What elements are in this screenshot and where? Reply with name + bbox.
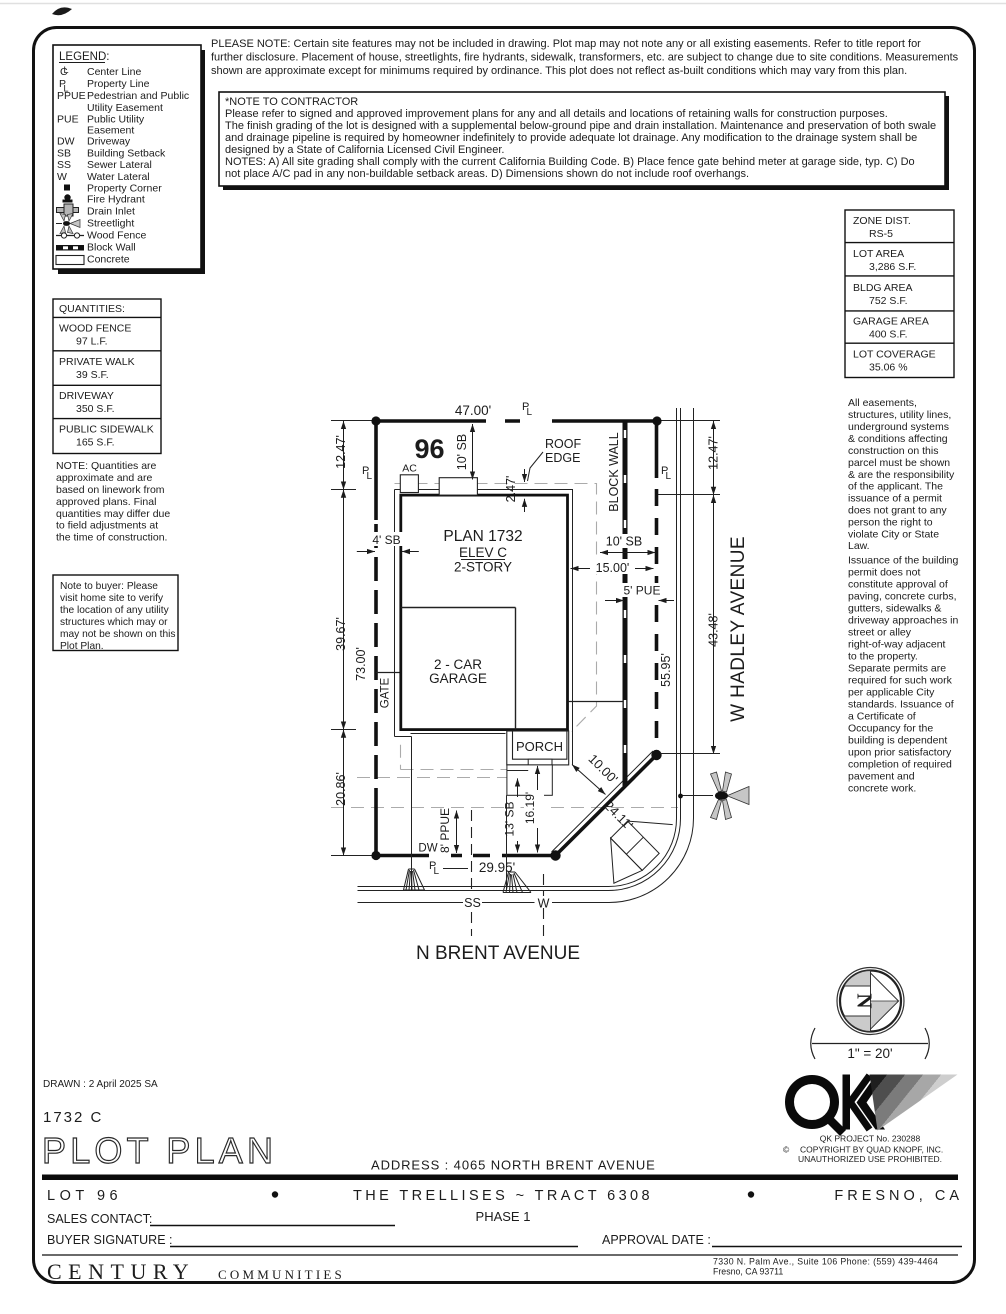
svg-text:structures which may or: structures which may or bbox=[60, 617, 168, 628]
svg-text:structures, utility lines,: structures, utility lines, bbox=[848, 409, 951, 421]
svg-text:29.95': 29.95' bbox=[479, 860, 515, 875]
svg-text:L: L bbox=[666, 471, 672, 482]
svg-text:quantities may differ due: quantities may differ due bbox=[56, 508, 170, 520]
svg-text:& conditions affecting: & conditions affecting bbox=[848, 433, 948, 445]
svg-text:350 S.F.: 350 S.F. bbox=[76, 403, 115, 415]
svg-text:of the applicant. The: of the applicant. The bbox=[848, 481, 943, 493]
svg-text:165 S.F.: 165 S.F. bbox=[76, 437, 115, 449]
svg-text:10' SB: 10' SB bbox=[606, 535, 642, 549]
svg-text:Utility Easement: Utility Easement bbox=[87, 102, 163, 114]
svg-text:LEGEND:: LEGEND: bbox=[59, 51, 110, 63]
svg-text:1" = 20': 1" = 20' bbox=[847, 1046, 892, 1061]
svg-text:3,286 S.F.: 3,286 S.F. bbox=[869, 261, 916, 273]
svg-text:and drainage pipeline is requi: and drainage pipeline is required by hom… bbox=[225, 132, 917, 144]
svg-text:designed by a State of Califor: designed by a State of California Licens… bbox=[225, 144, 504, 156]
svg-text:PUE: PUE bbox=[57, 114, 79, 126]
svg-text:Block Wall: Block Wall bbox=[87, 242, 136, 254]
svg-text:Pedestrian and Public: Pedestrian and Public bbox=[87, 90, 189, 102]
svg-text:approximate and are: approximate and are bbox=[56, 472, 152, 484]
svg-text:pavement and: pavement and bbox=[848, 771, 915, 783]
svg-text:47.00': 47.00' bbox=[455, 403, 491, 418]
svg-text:Sewer Lateral: Sewer Lateral bbox=[87, 159, 152, 171]
svg-text:UNAUTHORIZED USE PROHIBITED.: UNAUTHORIZED USE PROHIBITED. bbox=[798, 1154, 942, 1164]
svg-text:violate City or State: violate City or State bbox=[848, 529, 939, 541]
svg-text:DW: DW bbox=[57, 136, 75, 148]
svg-text:LOT 96: LOT 96 bbox=[47, 1188, 122, 1204]
svg-text:driveway approaches in: driveway approaches in bbox=[848, 615, 958, 627]
svg-text:upon prior satisfactory: upon prior satisfactory bbox=[848, 747, 952, 759]
svg-text:©: © bbox=[783, 1145, 790, 1155]
svg-text:10' SB: 10' SB bbox=[455, 434, 469, 470]
svg-text:Streetlight: Streetlight bbox=[87, 218, 134, 230]
svg-text:39.67': 39.67' bbox=[334, 617, 348, 651]
svg-text:2 - CAR: 2 - CAR bbox=[434, 657, 482, 672]
svg-text:may not be shown on this: may not be shown on this bbox=[60, 629, 176, 640]
svg-text:N BRENT AVENUE: N BRENT AVENUE bbox=[416, 943, 580, 964]
svg-text:QUANTITIES:: QUANTITIES: bbox=[59, 303, 125, 315]
svg-text:ROOF: ROOF bbox=[545, 437, 581, 451]
svg-text:paving, concrete curbs,: paving, concrete curbs, bbox=[848, 591, 957, 603]
svg-text:L: L bbox=[434, 866, 440, 877]
svg-text:N: N bbox=[853, 993, 877, 1008]
svg-text:PLEASE NOTE: Certain site fea: PLEASE NOTE: Certain site features may n… bbox=[211, 38, 921, 50]
svg-text:The finish grading of the lot: The finish grading of the lot is designe… bbox=[225, 120, 936, 132]
svg-text:12.47': 12.47' bbox=[707, 436, 721, 470]
svg-text:Fire Hydrant: Fire Hydrant bbox=[87, 194, 145, 206]
svg-text:COPYRIGHT BY QUAD KNOPF, INC.: COPYRIGHT BY QUAD KNOPF, INC. bbox=[800, 1145, 943, 1155]
svg-text:55.95': 55.95' bbox=[659, 653, 673, 687]
svg-text:35.06 %: 35.06 % bbox=[869, 362, 908, 374]
svg-text:to the property.: to the property. bbox=[848, 651, 918, 663]
svg-text:BLOCK WALL: BLOCK WALL bbox=[607, 432, 621, 511]
svg-text:APPROVAL DATE :: APPROVAL DATE : bbox=[602, 1233, 711, 1247]
svg-text:Building Setback: Building Setback bbox=[87, 148, 166, 160]
svg-text:gutters, sidewalks &: gutters, sidewalks & bbox=[848, 603, 941, 615]
svg-text:Concrete: Concrete bbox=[87, 254, 130, 266]
svg-text:AC: AC bbox=[402, 463, 417, 475]
svg-text:96: 96 bbox=[414, 434, 444, 464]
svg-text:EDGE: EDGE bbox=[545, 451, 580, 465]
svg-text:400 S.F.: 400 S.F. bbox=[869, 329, 908, 341]
svg-text:Center Line: Center Line bbox=[87, 66, 141, 78]
svg-text:GARAGE AREA: GARAGE AREA bbox=[853, 316, 929, 328]
svg-text:standards. Issuance of: standards. Issuance of bbox=[848, 699, 954, 711]
svg-text:8' PPUE: 8' PPUE bbox=[438, 808, 452, 853]
svg-text:building is dependent: building is dependent bbox=[848, 735, 947, 747]
svg-text:5' PUE: 5' PUE bbox=[624, 584, 661, 598]
svg-text:CENTURY: CENTURY bbox=[47, 1259, 195, 1284]
svg-text:DW: DW bbox=[418, 843, 437, 855]
svg-text:GARAGE: GARAGE bbox=[429, 671, 487, 686]
svg-text:7330 N. Palm Ave., Suite 106: 7330 N. Palm Ave., Suite 106 Phone: (559… bbox=[713, 1257, 938, 1267]
svg-text:*NOTE TO CONTRACTOR: *NOTE TO CONTRACTOR bbox=[225, 96, 358, 108]
svg-text:1732 C: 1732 C bbox=[43, 1109, 103, 1126]
svg-text:Fresno, CA 93711: Fresno, CA 93711 bbox=[713, 1267, 783, 1277]
svg-text:RS-5: RS-5 bbox=[869, 228, 893, 240]
svg-text:Property Line: Property Line bbox=[87, 78, 150, 90]
svg-text:per applicable City: per applicable City bbox=[848, 687, 935, 699]
svg-text:24.11': 24.11' bbox=[601, 798, 636, 833]
svg-text:ADDRESS : 4065 NORTH BRENT A: ADDRESS : 4065 NORTH BRENT AVENUE bbox=[371, 1158, 656, 1173]
svg-text:43.48': 43.48' bbox=[707, 613, 721, 647]
svg-text:12.47': 12.47' bbox=[334, 435, 348, 469]
svg-text:further disclosure. Placement: further disclosure. Placement of house, … bbox=[211, 52, 959, 64]
svg-text:DRIVEWAY: DRIVEWAY bbox=[59, 390, 114, 402]
svg-text:SALES CONTACT:: SALES CONTACT: bbox=[47, 1212, 152, 1226]
svg-text:Occupancy for the: Occupancy for the bbox=[848, 723, 933, 735]
svg-text:NOTES: A) All site grading sh: NOTES: A) All site grading shall comply … bbox=[225, 156, 915, 168]
svg-text:Wood Fence: Wood Fence bbox=[87, 230, 146, 242]
svg-text:to field adjustments at: to field adjustments at bbox=[56, 520, 158, 532]
svg-text:All easements,: All easements, bbox=[848, 397, 917, 409]
svg-text:W HADLEY AVENUE: W HADLEY AVENUE bbox=[728, 536, 749, 722]
svg-text:not place A/C pad in any non-b: not place A/C pad in any non-buildable s… bbox=[225, 168, 749, 180]
svg-text:L: L bbox=[64, 65, 69, 75]
svg-text:97 L.F.: 97 L.F. bbox=[76, 336, 108, 348]
svg-text:73.00': 73.00' bbox=[354, 647, 368, 681]
svg-text:person the right to: person the right to bbox=[848, 517, 933, 529]
svg-text:20.86': 20.86' bbox=[334, 772, 348, 806]
svg-text:approved plans. Final: approved plans. Final bbox=[56, 496, 156, 508]
svg-text:PLAN 1732: PLAN 1732 bbox=[443, 528, 522, 545]
svg-text:WOOD FENCE: WOOD FENCE bbox=[59, 323, 131, 335]
svg-text:permit does not: permit does not bbox=[848, 567, 920, 579]
svg-text:required for such work: required for such work bbox=[848, 675, 953, 687]
svg-text:based on linework from: based on linework from bbox=[56, 484, 165, 496]
svg-text:SB: SB bbox=[57, 148, 71, 160]
svg-text:Separate permits are: Separate permits are bbox=[848, 663, 946, 675]
svg-text:15.00': 15.00' bbox=[596, 561, 630, 575]
svg-text:Note to buyer: Please: Note to buyer: Please bbox=[60, 581, 158, 592]
svg-text:13' SB: 13' SB bbox=[503, 802, 517, 837]
svg-text:the location of any utility: the location of any utility bbox=[60, 605, 170, 616]
svg-text:parcel must be shown: parcel must be shown bbox=[848, 457, 950, 469]
svg-text:BUYER SIGNATURE :: BUYER SIGNATURE : bbox=[47, 1233, 172, 1247]
svg-text:W: W bbox=[57, 171, 67, 183]
svg-text:visit home site to verify: visit home site to verify bbox=[60, 593, 164, 604]
svg-text:& are the responsibility: & are the responsibility bbox=[848, 469, 955, 481]
svg-text:GATE: GATE bbox=[380, 677, 392, 708]
svg-text:PPUE: PPUE bbox=[57, 90, 86, 102]
svg-text:16.19': 16.19' bbox=[523, 792, 537, 824]
svg-text:LOT AREA: LOT AREA bbox=[853, 248, 904, 260]
svg-text:NOTE: Quantities are: NOTE: Quantities are bbox=[56, 460, 157, 472]
svg-text:L: L bbox=[527, 407, 533, 418]
svg-text:a Certificate of: a Certificate of bbox=[848, 711, 916, 723]
svg-text:Driveway: Driveway bbox=[87, 136, 131, 148]
svg-text:PUBLIC SIDEWALK: PUBLIC SIDEWALK bbox=[59, 424, 154, 436]
svg-text:W: W bbox=[538, 897, 550, 911]
svg-text:Plot Plan.: Plot Plan. bbox=[60, 641, 104, 652]
svg-text:PORCH: PORCH bbox=[516, 739, 563, 754]
svg-text:THE TRELLISES ~ TRACT 6308: THE TRELLISES ~ TRACT 6308 bbox=[353, 1188, 653, 1204]
svg-text:PHASE 1: PHASE 1 bbox=[476, 1209, 531, 1224]
svg-text:SS: SS bbox=[57, 159, 71, 171]
svg-text:right-of-way adjacent: right-of-way adjacent bbox=[848, 639, 946, 651]
svg-text:COMMUNITIES: COMMUNITIES bbox=[218, 1267, 345, 1282]
svg-text:2-STORY: 2-STORY bbox=[454, 560, 512, 575]
svg-text:underground systems: underground systems bbox=[848, 421, 949, 433]
svg-text:completion of required: completion of required bbox=[848, 759, 952, 771]
svg-text:Issuance of the building: Issuance of the building bbox=[848, 555, 958, 567]
svg-text:Please refer to signed and app: Please refer to signed and approved impr… bbox=[225, 108, 888, 120]
svg-text:PLOT PLAN: PLOT PLAN bbox=[42, 1130, 277, 1171]
svg-text:LOT COVERAGE: LOT COVERAGE bbox=[853, 349, 936, 361]
svg-text:ELEV C: ELEV C bbox=[459, 545, 507, 560]
svg-text:L: L bbox=[367, 471, 373, 482]
svg-text:ZONE DIST.: ZONE DIST. bbox=[853, 215, 911, 227]
svg-text:does not grant to any: does not grant to any bbox=[848, 505, 947, 517]
svg-text:constitute approval of: constitute approval of bbox=[848, 579, 948, 591]
svg-text:DRAWN : 2 April 2025 SA: DRAWN : 2 April 2025 SA bbox=[43, 1079, 158, 1090]
svg-text:the time of construction.: the time of construction. bbox=[56, 532, 167, 544]
svg-text:Law.: Law. bbox=[848, 540, 870, 552]
svg-text:FRESNO, CA: FRESNO, CA bbox=[834, 1188, 963, 1204]
svg-text:752 S.F.: 752 S.F. bbox=[869, 295, 908, 307]
svg-text:4' SB: 4' SB bbox=[372, 533, 400, 547]
svg-text:SS: SS bbox=[464, 896, 481, 910]
svg-text:street or alley: street or alley bbox=[848, 627, 912, 639]
svg-text:Water Lateral: Water Lateral bbox=[87, 171, 150, 183]
svg-text:QK PROJECT No. 230288: QK PROJECT No. 230288 bbox=[820, 1134, 921, 1144]
svg-text:concrete work.: concrete work. bbox=[848, 783, 916, 795]
svg-text:issuance of a permit: issuance of a permit bbox=[848, 493, 942, 505]
svg-text:PRIVATE WALK: PRIVATE WALK bbox=[59, 356, 135, 368]
svg-text:2.47': 2.47' bbox=[504, 476, 518, 503]
svg-text:39 S.F.: 39 S.F. bbox=[76, 369, 109, 381]
svg-text:shown are approximate except f: shown are approximate except for minimum… bbox=[211, 65, 907, 77]
svg-text:Drain Inlet: Drain Inlet bbox=[87, 206, 135, 218]
svg-text:BLDG AREA: BLDG AREA bbox=[853, 282, 913, 294]
svg-text:construction on this: construction on this bbox=[848, 445, 938, 457]
